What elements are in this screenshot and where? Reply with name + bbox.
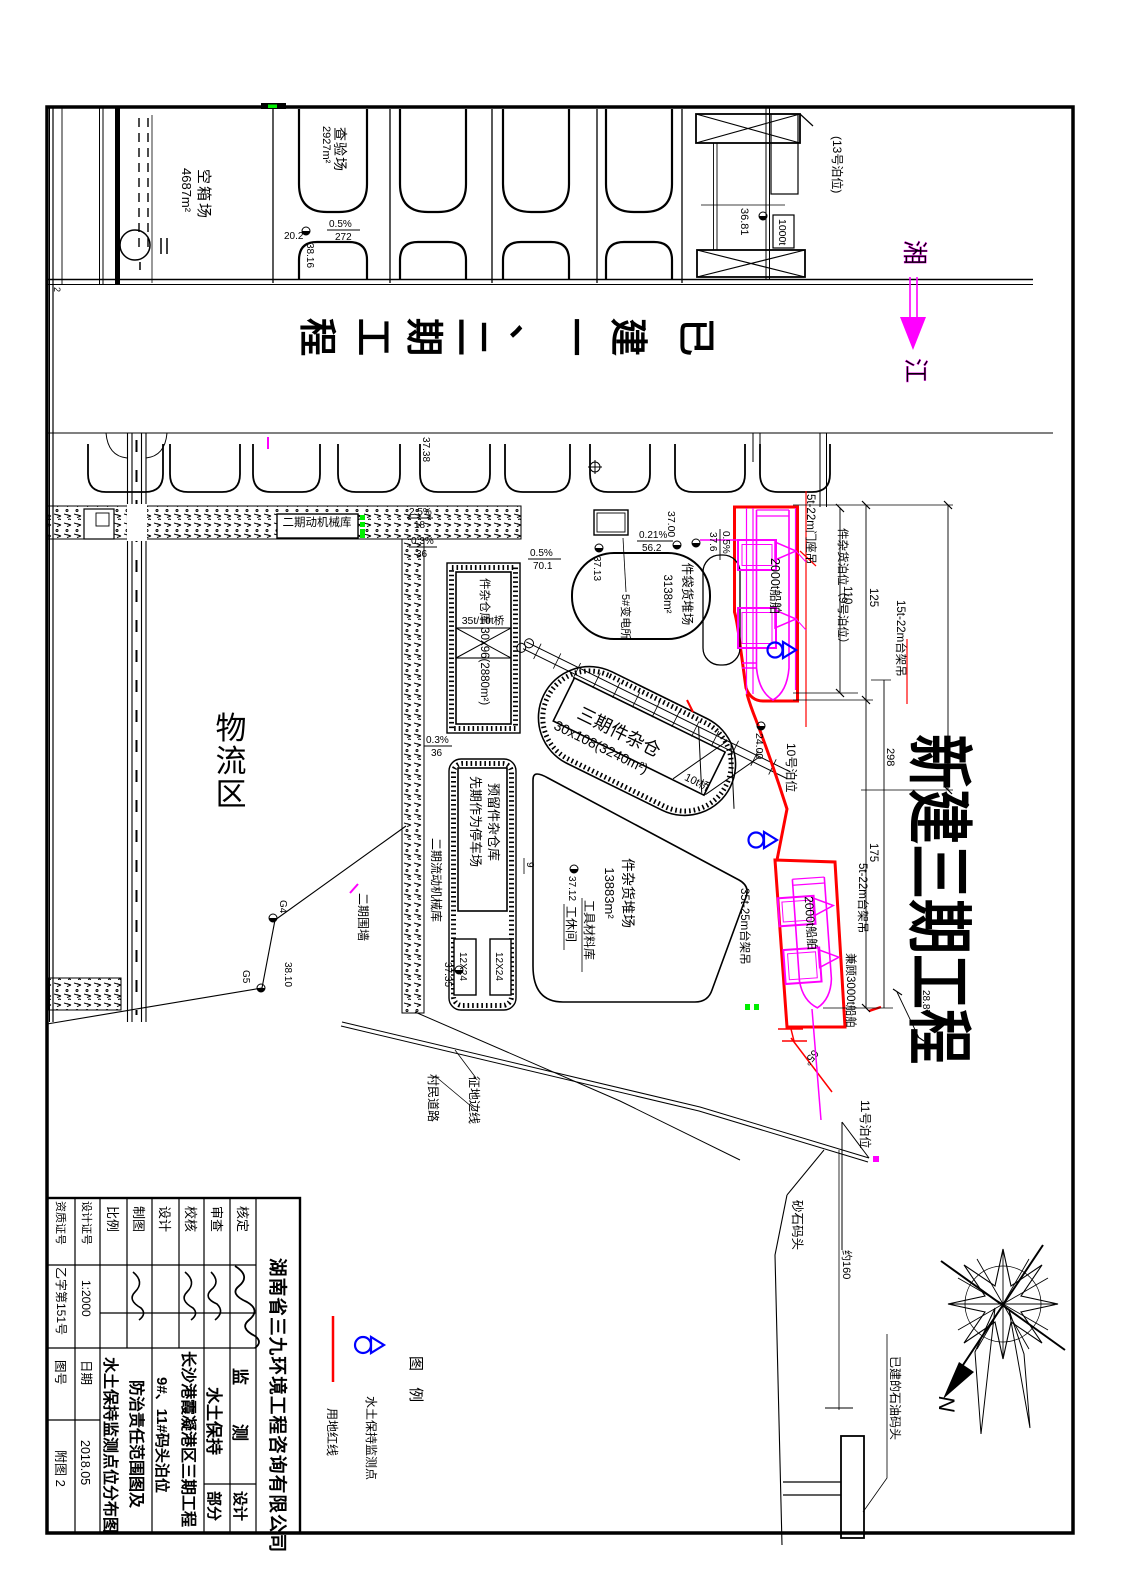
svg-text:0.5%: 0.5% [329,219,352,230]
svg-text:11号泊位: 11号泊位 [858,1100,873,1148]
svg-text:9: 9 [524,862,535,868]
svg-text:江: 江 [901,358,929,383]
svg-text:附图 2: 附图 2 [53,1450,68,1487]
svg-text:湖南省三九环境工程咨询有限公司: 湖南省三九环境工程咨询有限公司 [267,1258,288,1554]
svg-text:日期: 日期 [79,1360,93,1385]
svg-text:征地边线: 征地边线 [467,1076,481,1124]
svg-text:N: N [934,1396,959,1412]
svg-text:设计: 设计 [157,1206,172,1232]
svg-text:设计证号: 设计证号 [80,1201,93,1245]
svg-text:查验场: 查验场 [332,127,348,172]
svg-text:35t-25m台架吊: 35t-25m台架吊 [738,888,752,965]
svg-text:设计: 设计 [231,1491,249,1521]
svg-text:70.1: 70.1 [533,561,553,572]
svg-text:湘: 湘 [900,240,928,265]
svg-text:125: 125 [867,588,879,607]
svg-text:10号泊位: 10号泊位 [784,743,799,792]
svg-text:部分: 部分 [205,1491,223,1521]
svg-text:工: 工 [351,318,393,356]
svg-text:水土保持监测点: 水土保持监测点 [364,1396,379,1480]
svg-text:65°: 65° [801,1047,821,1067]
svg-text:1000t: 1000t [776,219,788,245]
svg-text:0.21%: 0.21% [639,530,667,541]
svg-text:2927m²: 2927m² [320,126,332,164]
svg-text:175: 175 [867,843,879,862]
svg-text:长沙港霞凝港区三期工程: 长沙港霞凝港区三期工程 [179,1351,198,1527]
svg-text:G5: G5 [240,970,251,984]
svg-text:0.3%: 0.3% [411,536,434,547]
svg-text:资质证号: 资质证号 [54,1201,67,1245]
svg-text:37.35: 37.35 [442,962,453,987]
svg-text:10t桥: 10t桥 [682,771,711,794]
svg-text:37.6: 37.6 [707,532,718,552]
svg-text:5#变电所: 5#变电所 [619,594,633,639]
svg-text:5t-22m门座吊: 5t-22m门座吊 [804,494,818,564]
svg-text:建: 建 [606,318,648,356]
svg-text:制图: 制图 [131,1206,146,1232]
svg-text:水土保持: 水土保持 [204,1387,224,1455]
svg-text:用地红线: 用地红线 [325,1408,340,1456]
svg-text:二期动机械库: 二期动机械库 [283,515,352,529]
svg-text:兼顾3000t船舶: 兼顾3000t船舶 [844,953,858,1028]
svg-text:空箱场: 空箱场 [195,169,212,220]
svg-text:(13号泊位): (13号泊位) [830,136,845,193]
svg-text:流: 流 [216,744,247,779]
svg-text:2000t船舶: 2000t船舶 [802,896,821,951]
svg-text:4687m²: 4687m² [179,168,194,213]
svg-text:件杂仓库 30x96(2880m²): 件杂仓库 30x96(2880m²) [478,578,492,705]
svg-text:工具材料库: 工具材料库 [582,900,597,960]
svg-text:1:2000: 1:2000 [79,1280,93,1317]
svg-text:36.81: 36.81 [738,208,750,236]
svg-text:水土保持监测点位分布图: 水土保持监测点位分布图 [101,1357,120,1533]
svg-text:比例: 比例 [105,1206,120,1232]
svg-text:36: 36 [431,748,443,759]
svg-text:审查: 审查 [209,1206,224,1232]
svg-text:36: 36 [416,549,428,560]
svg-text:37.13: 37.13 [591,556,602,581]
svg-text:、: 、 [504,324,546,362]
svg-text:件杂货堆场: 件杂货堆场 [620,858,636,928]
svg-text:程: 程 [295,318,337,356]
svg-text:298: 298 [884,748,896,766]
svg-text:预留件杂仓库: 预留件杂仓库 [486,783,501,861]
svg-text:13883m²: 13883m² [602,867,617,919]
svg-text:约160: 约160 [840,1250,853,1279]
svg-text:0.3%: 0.3% [426,735,449,746]
svg-text:12X24: 12X24 [457,952,468,981]
svg-text:0.5%: 0.5% [720,531,731,554]
svg-text:区: 区 [216,777,247,812]
svg-text:15t-22m台架吊: 15t-22m台架吊 [894,600,908,677]
svg-text:37.38: 37.38 [420,437,431,462]
svg-text:件杂货泊位（9号泊位）: 件杂货泊位（9号泊位） [836,528,850,649]
svg-text:新建三期工程: 新建三期工程 [902,734,976,1064]
svg-text:一: 一 [553,318,595,356]
svg-text:56.2: 56.2 [642,543,662,554]
svg-text:测: 测 [230,1424,250,1441]
svg-text:二期流动机械库: 二期流动机械库 [429,838,444,922]
svg-text:二: 二 [450,318,492,356]
svg-text:2: 2 [52,287,62,292]
svg-text:村民道路: 村民道路 [426,1074,441,1122]
svg-text:0.5%: 0.5% [530,548,553,559]
svg-text:38.10: 38.10 [282,962,293,987]
svg-text:工休间: 工休间 [564,906,578,942]
svg-text:20.2: 20.2 [284,231,304,242]
svg-text:乙字第151号: 乙字第151号 [54,1267,69,1335]
svg-text:砂石码头: 砂石码头 [790,1200,804,1250]
svg-text:图号: 图号 [53,1360,67,1385]
svg-text:37.12: 37.12 [566,876,577,901]
svg-text:已: 已 [674,318,716,356]
svg-text:监: 监 [230,1368,250,1385]
svg-text:18: 18 [414,520,426,531]
svg-text:期: 期 [402,318,444,356]
svg-text:图 例: 图 例 [407,1356,424,1408]
svg-text:防治责任范围图及: 防治责任范围图及 [127,1380,146,1509]
svg-text:2018.05: 2018.05 [78,1440,92,1485]
svg-text:二期围墙: 二期围墙 [356,893,370,941]
svg-text:38.16: 38.16 [304,243,315,268]
svg-text:校核: 校核 [183,1206,198,1232]
svg-text:12X24: 12X24 [493,952,504,981]
svg-text:核定: 核定 [235,1206,250,1232]
svg-text:2.5%: 2.5% [409,507,432,518]
svg-text:G4: G4 [277,900,288,914]
svg-text:5t-22m台架吊: 5t-22m台架吊 [856,863,870,933]
svg-text:物: 物 [216,711,247,746]
svg-text:件袋货堆场: 件袋货堆场 [680,563,695,626]
svg-text:2000t船舶: 2000t船舶 [768,558,783,614]
svg-text:3138m²: 3138m² [661,575,673,614]
svg-text:9#、11#码头泊位: 9#、11#码头泊位 [153,1377,171,1493]
svg-text:已建的石油码头: 已建的石油码头 [888,1356,903,1440]
svg-text:272: 272 [335,232,352,243]
svg-text:24.00: 24.00 [753,733,765,759]
svg-text:先期作为停车场: 先期作为停车场 [468,776,483,867]
